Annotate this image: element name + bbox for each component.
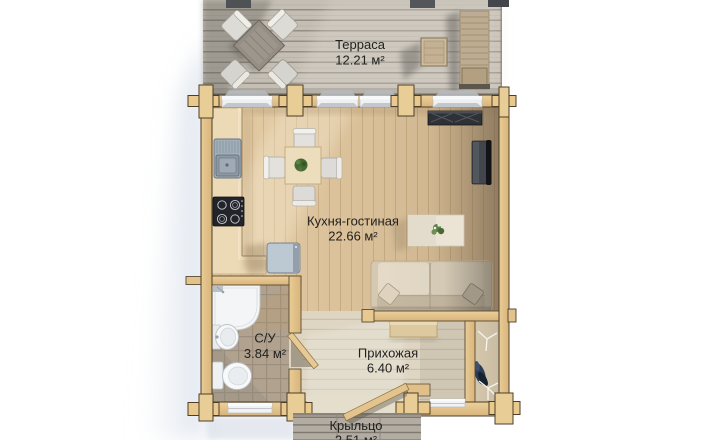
svg-text:12.21 м²: 12.21 м² xyxy=(335,53,385,68)
svg-text:22.66 м²: 22.66 м² xyxy=(328,229,378,244)
svg-text:3.84 м²: 3.84 м² xyxy=(244,346,287,361)
svg-text:Кухня-гостиная: Кухня-гостиная xyxy=(307,214,399,229)
svg-text:Крыльцо: Крыльцо xyxy=(329,418,382,433)
svg-text:2.51 м²: 2.51 м² xyxy=(335,433,378,440)
svg-text:Терраса: Терраса xyxy=(335,37,386,52)
svg-text:Прихожая: Прихожая xyxy=(358,346,418,361)
svg-text:6.40 м²: 6.40 м² xyxy=(367,361,410,376)
svg-text:С/У: С/У xyxy=(254,331,276,346)
